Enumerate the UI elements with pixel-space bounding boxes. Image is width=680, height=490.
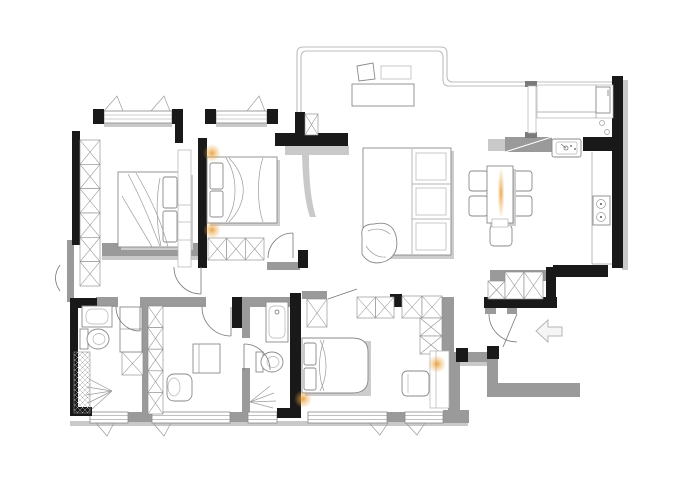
gray-walls-shape [67,240,74,302]
master-wardrobe-d [420,318,442,354]
bed-2-pillow [210,163,223,189]
furniture-shape [600,203,602,205]
dining-candle-flame [498,167,505,219]
furniture-shape [416,153,446,180]
furniture-shape [86,309,108,324]
window-master-a [308,412,387,423]
window-bedroom2 [216,111,267,123]
black-walls-shape [612,76,623,268]
furniture-shape [570,145,572,147]
gray-walls-shape [267,262,300,270]
side-door-swing [56,265,61,291]
wall-shadows-shape [285,146,349,155]
gray-walls-shape [242,300,250,338]
master-wardrobe-a [307,299,327,327]
bed-2-pillow [210,191,223,217]
gray-walls-shape [302,291,327,299]
casement-mark [151,96,170,111]
shower-floor [74,352,90,413]
black-walls-shape [205,109,216,124]
bedroom1-wardrobe [80,140,100,286]
entry-door-swing [489,314,517,342]
balcony-mat [381,66,411,79]
window-master-b [405,412,443,423]
black-walls-shape [583,137,613,151]
gray-walls-shape [96,297,118,307]
bedroom1-door-swing [174,267,201,294]
window-study [152,412,230,423]
entry-closet-a [488,281,505,299]
floor-plan-canvas [0,0,680,490]
window-bathroom2 [248,412,277,423]
furniture-shape [250,402,273,408]
furniture-shape [168,378,180,396]
cooktop [593,196,610,225]
entry-door-post [485,308,496,314]
furniture-shape [269,306,285,338]
master-wardrobe-b [357,297,394,318]
balcony-chair [357,63,375,81]
gray-walls-shape [387,412,405,422]
study-wardrobe [148,306,163,414]
casement-mark [104,96,123,111]
black-walls-shape [295,112,305,135]
casement-mark [247,96,265,111]
dining-chair [469,196,488,216]
entry-marker [536,320,562,342]
black-walls-shape [487,346,499,359]
master-chair [402,371,429,396]
gray-walls-shape [242,368,250,414]
window-bathroom1 [90,412,128,423]
dining-chair [490,225,512,246]
entry-door-post [507,308,517,314]
furniture-shape [416,223,446,250]
window-bedroom1 [104,111,172,123]
gray-walls-shape [487,383,580,397]
black-walls-shape [72,131,80,245]
gray-walls-shape [140,297,164,307]
black-walls-shape [277,408,301,418]
entry-direction-arrow [536,320,562,342]
study-desk [193,344,220,373]
floor-hatch [74,352,90,413]
furniture-shape [600,216,602,218]
wall-shadows-shape [488,139,505,151]
furniture-shape [93,334,105,345]
kitchen-slider [528,86,536,133]
balcony-desk [352,84,414,106]
black-walls-shape [175,112,183,143]
furniture-shape [600,121,605,126]
bed-1-pillow [163,177,177,208]
lamp-glow [203,221,221,239]
shower-spray [250,386,270,402]
furniture-shape [556,142,577,154]
bedroom2-door-swing [268,233,293,258]
wall-shadows-shape [302,155,316,217]
black-walls-shape [298,250,308,268]
furniture-shape [605,130,610,135]
bathroom1-storage [122,352,143,375]
furniture-shape [250,401,276,402]
furniture-shape [492,219,508,227]
lamp-glow [294,390,312,408]
furniture-shape [250,393,274,402]
gray-walls-shape [163,297,206,307]
gray-walls-shape [230,412,248,422]
gray-walls-shape [442,297,454,352]
floor-plan-page [0,0,680,490]
gray-walls-shape [443,410,469,423]
furniture-shape [416,188,446,215]
dining-chair [469,171,488,191]
lamp-glow [428,355,446,373]
column-box [305,114,318,135]
master-door-leaf [328,289,357,299]
master-wardrobe-c [402,296,442,318]
black-walls-shape [93,109,104,124]
black-walls-shape [553,265,608,277]
bed-1-headboard [178,150,191,267]
black-walls-shape [456,348,468,362]
master-pillow [304,343,316,365]
black-walls-shape [267,109,278,124]
study-door-swing [202,307,231,336]
master-pillow [304,368,316,390]
entry-closet-b [505,272,543,299]
lamp-glow [203,144,221,162]
bedroom2-wardrobe [208,238,264,260]
black-walls-shape [232,297,242,328]
furniture-shape [574,148,576,150]
